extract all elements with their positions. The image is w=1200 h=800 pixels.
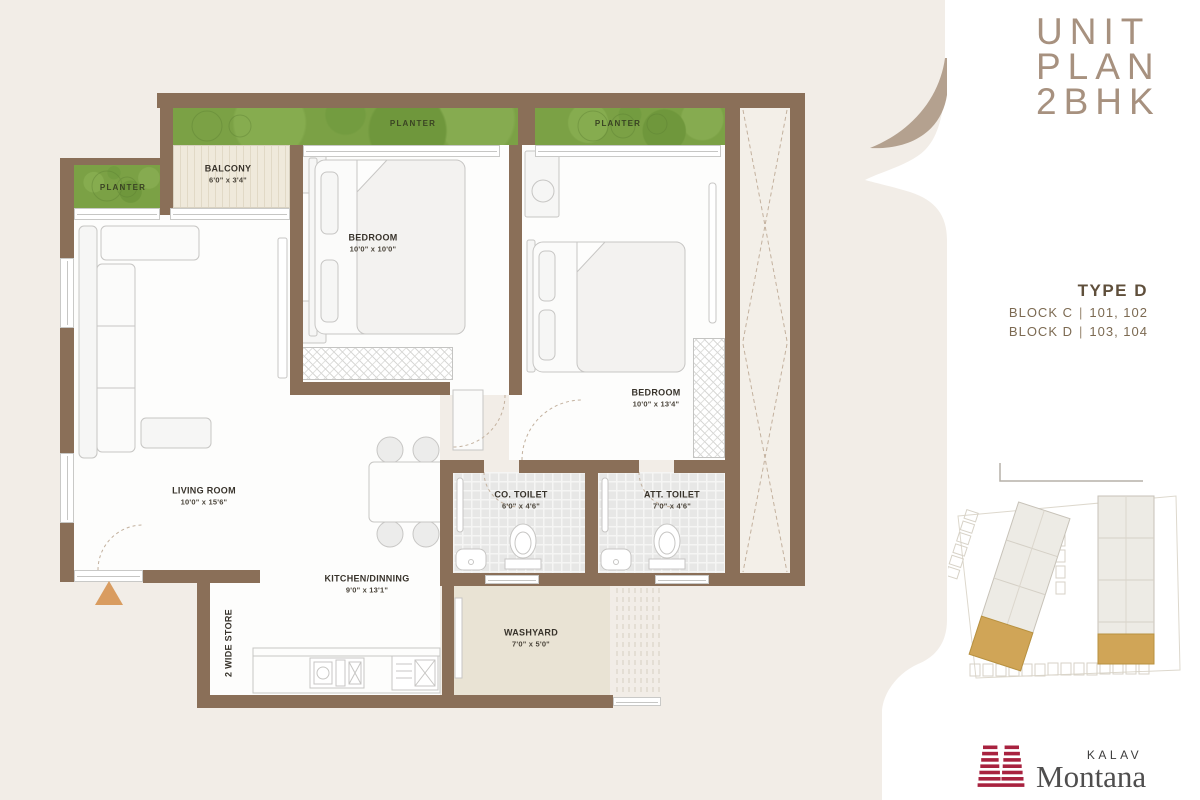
room-label-kitchen: KITCHEN/DINNING 9'0" x 13'1" <box>325 574 410 595</box>
wall <box>290 145 303 395</box>
room-label-co-toilet: CO. TOILET 6'0" x 4'6" <box>494 490 547 511</box>
window <box>613 697 661 706</box>
floor-plan: PLANTER PLANTER PLANTER BALCONY 6'0" x 3… <box>57 88 807 710</box>
block-name: BLOCK C <box>1009 305 1073 320</box>
brand-text: KALAV Montana <box>1036 748 1146 792</box>
room-label-att-toilet: ATT. TOILET 7'0" x 4'6" <box>644 490 700 511</box>
wall <box>725 108 740 586</box>
wall <box>442 586 454 695</box>
bed-2 <box>525 151 716 372</box>
page-title: UNIT PLAN 2BHK <box>1036 14 1161 119</box>
window <box>60 453 74 523</box>
room-name: PLANTER <box>390 120 436 128</box>
type-row: BLOCK D|103, 104 <box>1009 324 1148 339</box>
wall <box>160 93 173 215</box>
room-label-store: 2 WIDE STORE <box>224 609 235 677</box>
wall <box>585 460 598 586</box>
room-dim: 6'0" x 3'4" <box>205 175 252 184</box>
separator: | <box>1079 305 1083 320</box>
window <box>170 208 290 220</box>
room-dim: 9'0" x 13'1" <box>325 585 410 594</box>
room-label-planter-left: PLANTER <box>100 184 146 192</box>
brand-logo-icon <box>974 744 1028 792</box>
room-name: BALCONY <box>205 164 252 175</box>
wall <box>790 93 805 586</box>
room-dim: 10'0" x 10'0" <box>348 244 397 253</box>
window <box>74 208 160 220</box>
type-row: BLOCK C|101, 102 <box>1009 305 1148 320</box>
room-label-bedroom-1: BEDROOM 10'0" x 10'0" <box>348 233 397 254</box>
window <box>485 575 539 584</box>
wall <box>60 158 160 165</box>
entrance-arrow <box>95 581 123 605</box>
room-label-bedroom-2: BEDROOM 10'0" x 13'4" <box>631 388 680 409</box>
site-building-d <box>1098 496 1154 664</box>
room-name: WASHYARD <box>504 628 558 639</box>
site-highlight-unit-d <box>1098 634 1154 664</box>
washyard-fixtures <box>455 598 462 678</box>
wall <box>674 460 725 473</box>
room-name: KITCHEN/DINNING <box>325 574 410 585</box>
window <box>60 258 74 328</box>
title-line: 2BHK <box>1036 84 1161 119</box>
wall <box>197 583 210 708</box>
room-label-planter-top-1: PLANTER <box>390 120 436 128</box>
title-line: PLAN <box>1036 49 1161 84</box>
room-dim: 10'0" x 13'4" <box>631 399 680 408</box>
room-dim: 6'0" x 4'6" <box>494 501 547 510</box>
room-dim: 10'0" x 15'6" <box>172 497 236 506</box>
separator: | <box>1079 324 1083 339</box>
tv-unit <box>278 238 287 378</box>
window <box>303 145 500 157</box>
wall <box>197 695 613 708</box>
wall <box>157 93 805 108</box>
wardrobe-bedroom-2 <box>693 338 725 458</box>
block-name: BLOCK D <box>1009 324 1073 339</box>
dining-set <box>369 437 447 547</box>
room-label-washyard: WASHYARD 7'0" x 5'0" <box>504 628 558 649</box>
duct-cross-hatch <box>743 110 787 572</box>
brand-logo: KALAV Montana <box>974 744 1146 792</box>
room-dim: 7'0" x 4'6" <box>644 501 700 510</box>
room-name: ATT. TOILET <box>644 490 700 501</box>
wall <box>440 460 453 586</box>
room-label-balcony: BALCONY 6'0" x 3'4" <box>205 164 252 185</box>
sofa <box>79 226 211 458</box>
room-name: 2 WIDE STORE <box>224 609 235 677</box>
open-to-sky-hatch <box>617 588 659 694</box>
room-name: BEDROOM <box>348 233 397 244</box>
wall <box>519 460 639 473</box>
room-name: LIVING ROOM <box>172 486 236 497</box>
title-line: UNIT <box>1036 14 1161 49</box>
unit-type-info: TYPE D BLOCK C|101, 102 BLOCK D|103, 104 <box>1009 281 1148 339</box>
wall <box>290 382 450 395</box>
room-name: PLANTER <box>595 120 641 128</box>
block-units: 103, 104 <box>1089 324 1148 339</box>
block-units: 101, 102 <box>1089 305 1148 320</box>
room-dim: 7'0" x 5'0" <box>504 639 558 648</box>
site-key-plan <box>948 458 1193 693</box>
room-name: CO. TOILET <box>494 490 547 501</box>
room-name: PLANTER <box>100 184 146 192</box>
window <box>655 575 709 584</box>
room-label-living-room: LIVING ROOM 10'0" x 15'6" <box>172 486 236 507</box>
wall <box>518 108 535 145</box>
window <box>535 145 721 157</box>
room-name: BEDROOM <box>631 388 680 399</box>
site-building-c <box>969 502 1070 671</box>
brand-name-main: Montana <box>1036 761 1146 792</box>
wall <box>509 145 522 395</box>
room-label-planter-top-2: PLANTER <box>595 120 641 128</box>
wardrobe-bedroom-1 <box>300 347 453 380</box>
wall <box>143 570 260 583</box>
type-title: TYPE D <box>1009 281 1148 301</box>
